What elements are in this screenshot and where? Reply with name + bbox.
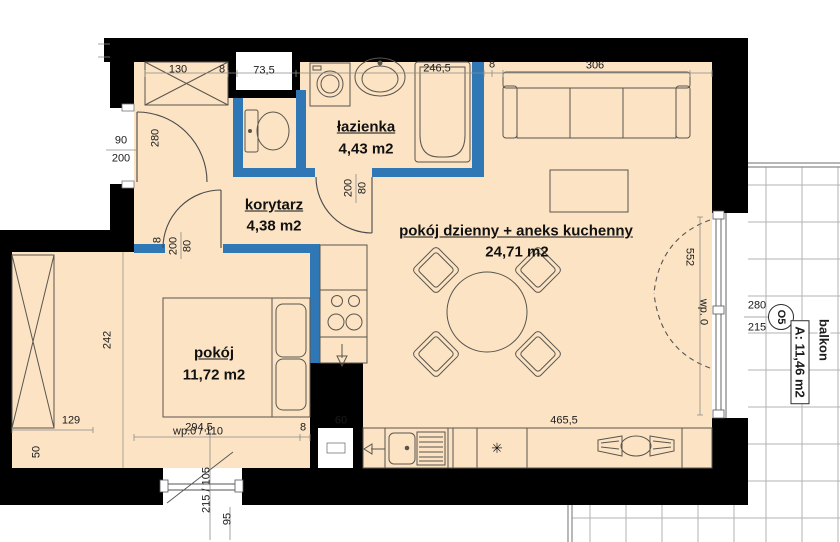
balcony-window [712,211,748,418]
fridge-star-symbol: ✳ [491,441,503,455]
dim-bedroom-wall: 8 [300,423,306,434]
dim-bath-door-height: 200 [344,179,355,197]
dim-duct-width: 73,5 [253,66,274,77]
dim-partition-8: 8 [153,237,164,243]
dim-kitchen-counter: 465,5 [550,416,578,427]
room-label-bathroom: łazienka [337,120,395,135]
room-area-corridor: 4,38 m2 [246,219,301,234]
dim-kitchen-niche: 60 [335,416,347,427]
dim-bedroom-depth: 242 [103,331,114,349]
dim-balcony-opening: 552 [684,248,695,266]
bottom-window-label: wp.0 / 110 [173,427,223,438]
dim-bedroom-door-height: 200 [169,237,180,255]
dim-bath-door-width: 80 [358,182,369,194]
dim-alcove-width: 129 [62,416,80,427]
room-label-corridor: korytarz [245,198,303,213]
room-area-bathroom: 4,43 m2 [338,142,393,157]
balcony-window-width: 280 [748,301,766,312]
dim-wall-8b: 8 [489,60,495,71]
balcony-name: balkon [818,317,831,363]
room-label-living: pokój dzienny + aneks kuchenny [399,224,633,239]
dim-alcove-offset: 50 [32,446,43,458]
bottom-window-offset: 95 [223,513,234,525]
room-label-bedroom: pokój [194,346,234,361]
floor-plan-drawing [0,0,840,542]
dim-hall-depth: 280 [151,129,162,147]
balcony-window-height: 215 [748,323,766,334]
dim-wall-8: 8 [219,65,225,76]
dim-bedroom-door-width: 80 [183,240,194,252]
dim-entrance-height: 200 [112,154,130,165]
floor-plan: 130 8 73,5 246,5 8 306 90 200 280 200 80… [0,0,840,542]
room-area-bedroom: 11,72 m2 [183,368,246,383]
dim-living-width: 306 [586,61,604,72]
room-area-living: 24,71 m2 [485,245,548,260]
right-window-label: wp. 0 [698,299,709,325]
bottom-window-size: 215 / 105 [202,467,213,513]
dim-wardrobe-width: 130 [169,65,187,76]
dim-bath-width: 246,5 [423,64,451,75]
balcony-area: A: 11,46 m2 [791,320,810,404]
dim-entrance-width: 90 [115,136,127,147]
